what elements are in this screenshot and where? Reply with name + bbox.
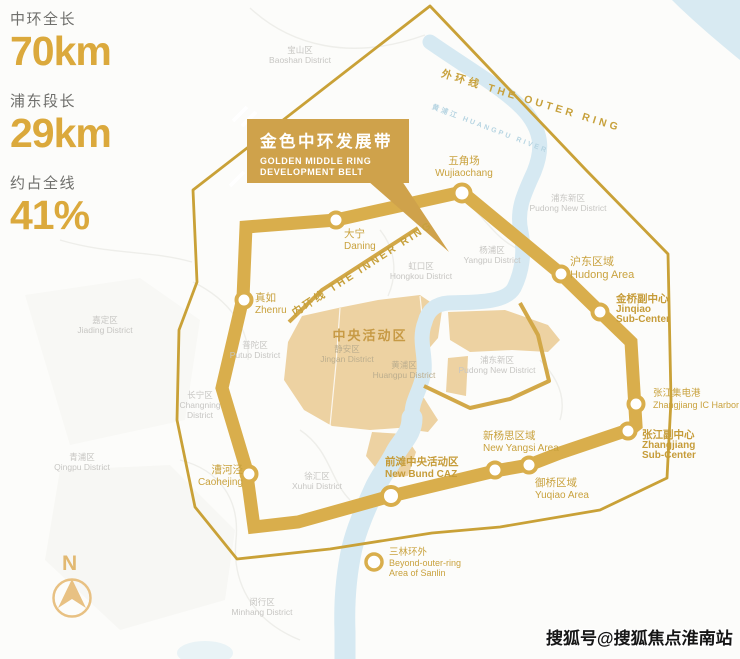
node-yuqiao	[522, 458, 537, 473]
pond	[177, 641, 233, 659]
node-wujiaochang	[454, 185, 471, 202]
district-putuo: 普陀区 Putuo District	[210, 340, 300, 360]
node-sanlin	[366, 554, 382, 570]
node-hudong	[554, 267, 569, 282]
node-new-bund	[382, 487, 400, 505]
label-new-bund: 前滩中央活动区 New Bund CAZ	[385, 456, 459, 481]
coast-water	[672, 0, 740, 60]
node-zhenru	[237, 293, 252, 308]
node-new-yangsi	[488, 463, 503, 478]
stat-label-share: 约占全线	[10, 172, 111, 193]
banner-title: 金色中环发展带	[260, 128, 409, 152]
label-caohejing: 漕河泾 Caohejing	[181, 464, 243, 489]
district-huangpu: 黄浦区 Huangpu District	[359, 360, 449, 380]
banner-subtitle-2: DEVELOPMENT BELT	[260, 167, 409, 178]
label-zhangjiang-ic: 张江集电港 Zhangjiang IC Harbor	[653, 389, 739, 410]
district-yangpu: 杨浦区 Yangpu District	[447, 245, 537, 265]
node-caohejing	[242, 467, 257, 482]
node-jinqiao	[593, 305, 608, 320]
stats-panel: 中环全长 70km 浦东段长 29km 约占全线 41%	[10, 8, 111, 237]
label-daning: 大宁 Daning	[344, 228, 376, 253]
watermark: 搜狐号@搜狐焦点淮南站	[546, 624, 733, 649]
label-wujiaochang: 五角场 Wujiaochang	[424, 155, 504, 180]
node-daning	[329, 213, 344, 228]
district-minhang: 闵行区 Minhang District	[217, 597, 307, 617]
caz-label: 中央活动区	[315, 325, 425, 344]
label-zhangjiang-sub: 张江副中心 Zhangjiang Sub-Center	[642, 430, 696, 462]
district-baoshan: 宝山区 Baoshan District	[255, 45, 345, 65]
golden-middle-ring-infographic: 中环全长 70km 浦东段长 29km 约占全线 41% 金色中环发展带 GOL…	[0, 0, 740, 659]
district-xuhui: 徐汇区 Xuhui District	[272, 471, 362, 491]
label-yuqiao: 御桥区域 Yuqiao Area	[535, 477, 589, 502]
label-jinqiao: 金桥副中心 Jinqiao Sub-Center	[616, 294, 670, 326]
banner-subtitle-1: GOLDEN MIDDLE RING	[260, 156, 409, 167]
compass-icon	[54, 579, 91, 617]
district-pudong-mid: 浦东新区 Pudong New District	[452, 355, 542, 375]
district-changning: 长宁区 Changning District	[155, 390, 245, 420]
district-qingpu: 青浦区 Qingpu District	[37, 452, 127, 472]
stat-label-pudong-length: 浦东段长	[10, 90, 111, 111]
stat-label-total-length: 中环全长	[10, 8, 111, 29]
node-zhangjiang-sub	[621, 424, 636, 439]
stat-value-total-length: 70km	[10, 29, 111, 73]
title-banner: 金色中环发展带 GOLDEN MIDDLE RING DEVELOPMENT B…	[247, 119, 409, 183]
label-new-yangsi: 新杨思区域 New Yangsi Area	[483, 430, 559, 455]
label-zhenru: 真如 Zhenru	[255, 292, 287, 317]
district-jiading: 嘉定区 Jiading District	[60, 315, 150, 335]
node-zhangjiang-ic	[629, 397, 644, 412]
stat-value-pudong-length: 29km	[10, 111, 111, 155]
compass-north-label: N	[62, 552, 77, 576]
label-hudong: 沪东区域 Hudong Area	[570, 256, 634, 281]
district-pudong-north: 浦东新区 Pudong New District	[523, 193, 613, 213]
stat-value-share: 41%	[10, 193, 111, 237]
label-sanlin: 三林环外 Beyond-outer-ring Area of Sanlin	[389, 548, 461, 578]
